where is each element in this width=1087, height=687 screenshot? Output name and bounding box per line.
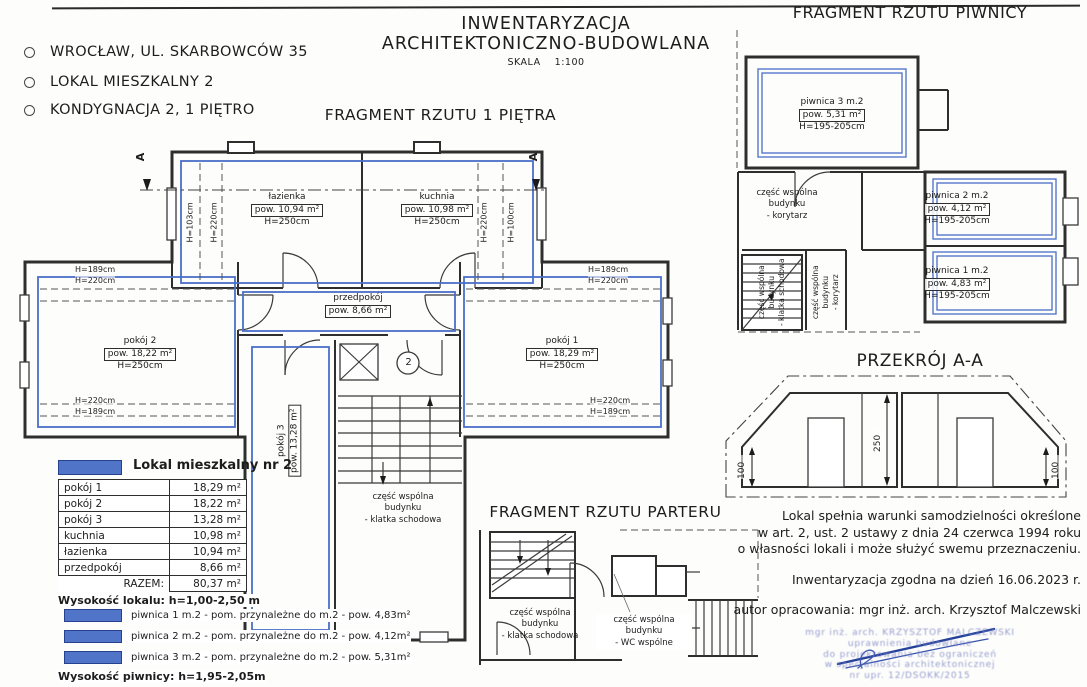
height-label: H=220cm <box>480 193 489 243</box>
section-marker-a-left: A <box>134 149 148 165</box>
table-row: łazienka10,94 m² <box>59 544 247 560</box>
unit-height-note: Wysokość lokalu: h=1,00-2,50 m <box>58 594 260 607</box>
room-label-pokoj1: pokój 1 pow. 18,29 m² H=250cm <box>512 336 612 373</box>
staircase <box>338 344 462 485</box>
notes-block: Lokal spełnia warunki samodzielności okr… <box>709 508 1081 633</box>
header-address-row: WROCŁAW, UL. SKARBOWCÓW 35 <box>24 44 308 60</box>
header-storey: KONDYGNACJA 2, 1 PIĘTRO <box>50 102 255 118</box>
room-area: pow. 18,29 m² <box>526 348 598 362</box>
bullet-circle-icon <box>24 77 35 88</box>
row-label: kuchnia <box>59 528 170 544</box>
row-label: przedpokój <box>59 560 170 576</box>
author-note: autor opracowania: mgr inż. arch. Krzysz… <box>709 602 1081 619</box>
common-area-label: część wspólna budynku - klatka schodowa <box>344 492 462 526</box>
row-label: łazienka <box>59 544 170 560</box>
room-name: piwnica 2 m.2 <box>897 191 1017 203</box>
room-height: H=195-205cm <box>897 216 1017 228</box>
row-value: 10,94 m² <box>170 544 247 560</box>
table-row: pokój 118,29 m² <box>59 480 247 496</box>
table-row: pokój 218,22 m² <box>59 496 247 512</box>
section-drawing <box>726 376 1066 497</box>
row-value: 18,29 m² <box>170 480 247 496</box>
height-label: H=220cm <box>75 276 115 285</box>
height-label: H=189cm <box>590 407 630 416</box>
legend-item-piwnica2: piwnica 2 m.2 - pom. przynależne do m.2 … <box>64 630 411 643</box>
height-label: H=220cm <box>590 396 630 405</box>
scale-note: SKALA 1:100 <box>356 57 736 68</box>
room-area: pow. 10,94 m² <box>251 204 323 218</box>
room-area: pow. 10,98 m² <box>401 204 473 218</box>
room-area: pow. 18,22 m² <box>104 348 176 362</box>
header-unit-row: LOKAL MIESZKALNY 2 <box>24 74 214 90</box>
legend-item-piwnica1: piwnica 1 m.2 - pom. przynależne do m.2 … <box>64 609 411 622</box>
basement-height-note: Wysokość piwnicy: h=1,95-2,05m <box>58 670 266 683</box>
height-label: H=189cm <box>75 407 115 416</box>
bullet-circle-icon <box>24 105 35 116</box>
room-name: piwnica 1 m.2 <box>897 266 1017 278</box>
room-height: H=250cm <box>90 361 190 373</box>
basement-color-swatch <box>64 609 122 622</box>
drawing-sheet: WROCŁAW, UL. SKARBOWCÓW 35 LOKAL MIESZKA… <box>0 0 1087 687</box>
height-label: H=100cm <box>507 193 516 243</box>
room-height: H=250cm <box>512 361 612 373</box>
room-label-piwnica1: piwnica 1 m.2 pow. 4,83 m² H=195-205cm <box>897 266 1017 303</box>
room-name: pokój 3 <box>276 381 288 501</box>
bullet-circle-icon <box>24 47 35 58</box>
table-row: kuchnia10,98 m² <box>59 528 247 544</box>
row-value: 13,28 m² <box>170 512 247 528</box>
basement-corridor-label-2: część wspólna budynku - korytarz <box>811 248 841 336</box>
document-title: INWENTARYZACJA ARCHITEKTONICZNO-BUDOWLAN… <box>356 14 736 68</box>
room-name: pokój 2 <box>90 336 190 348</box>
room-name: kuchnia <box>387 192 487 204</box>
height-label: H=189cm <box>588 265 628 274</box>
row-label: pokój 2 <box>59 496 170 512</box>
room-label-kuchnia: kuchnia pow. 10,98 m² H=250cm <box>387 192 487 229</box>
basement-color-swatch <box>64 630 122 643</box>
room-label-piwnica3: piwnica 3 m.2 pow. 5,31 m² H=195-205cm <box>772 97 892 134</box>
total-value: 80,37 m² <box>170 576 247 592</box>
room-name: łazienka <box>237 192 337 204</box>
unit-number: 2 <box>402 357 415 368</box>
legend-title: Lokal mieszkalny nr 2 <box>133 458 292 473</box>
first-floor-plan-title: FRAGMENT RZUTU 1 PIĘTRA <box>318 106 563 124</box>
section-marker-a-right: A <box>527 149 541 165</box>
basement-color-swatch <box>64 651 122 664</box>
ground-floor-plan-title: FRAGMENT RZUTU PARTERU <box>468 503 743 521</box>
area-table: pokój 118,29 m² pokój 218,22 m² pokój 31… <box>58 479 247 592</box>
inventory-date-note: Inwentaryzacja zgodna na dzień 16.06.202… <box>709 572 1081 589</box>
header-address: WROCŁAW, UL. SKARBOWCÓW 35 <box>50 44 308 60</box>
row-value: 8,66 m² <box>170 560 247 576</box>
header-storey-row: KONDYGNACJA 2, 1 PIĘTRO <box>24 102 255 118</box>
height-label: H=220cm <box>75 396 115 405</box>
table-total-row: RAZEM:80,37 m² <box>59 576 247 592</box>
legal-statement: Lokal spełnia warunki samodzielności okr… <box>709 508 1081 558</box>
row-value: 10,98 m² <box>170 528 247 544</box>
room-height: H=250cm <box>237 217 337 229</box>
section-dim-100-right: 100 <box>1051 455 1061 479</box>
table-row: pokój 313,28 m² <box>59 512 247 528</box>
basement-stair-label: część wspólna budynku - klatka schodowa <box>757 248 787 336</box>
title-line1: INWENTARYZACJA <box>356 14 736 34</box>
ground-wc-label: część wspólna budynku - WC wspólne <box>596 614 692 650</box>
room-name: pokój 1 <box>512 336 612 348</box>
room-label-piwnica2: piwnica 2 m.2 pow. 4,12 m² H=195-205cm <box>897 191 1017 228</box>
room-height: H=250cm <box>387 217 487 229</box>
room-label-pokoj2: pokój 2 pow. 18,22 m² H=250cm <box>90 336 190 373</box>
section-title: PRZEKRÓJ A-A <box>810 351 1030 371</box>
legend-item-piwnica3: piwnica 3 m.2 - pom. przynależne do m.2 … <box>64 651 411 664</box>
room-height: H=195-205cm <box>897 291 1017 303</box>
room-label-lazienka: łazienka pow. 10,94 m² H=250cm <box>237 192 337 229</box>
room-name: przedpokój <box>308 293 408 305</box>
height-label: H=220cm <box>210 193 219 243</box>
row-value: 18,22 m² <box>170 496 247 512</box>
room-height: H=195-205cm <box>772 122 892 134</box>
section-dim-250: 250 <box>873 428 883 452</box>
ground-stair-label: część wspólna budynku - klatka schodowa <box>486 608 594 642</box>
architect-stamp: mgr inż. arch. KRZYSZTOF MALCZEWSKI upra… <box>790 628 1030 682</box>
room-area: pow. 8,66 m² <box>325 305 392 319</box>
header-unit: LOKAL MIESZKALNY 2 <box>50 74 214 90</box>
title-line2: ARCHITEKTONICZNO-BUDOWLANA <box>356 34 736 54</box>
total-label: RAZEM: <box>59 576 170 592</box>
row-label: pokój 3 <box>59 512 170 528</box>
unit-color-swatch <box>58 460 122 475</box>
section-dim-100-left: 100 <box>737 455 747 479</box>
height-label: H=220cm <box>588 276 628 285</box>
room-area: pow. 5,31 m² <box>799 109 866 123</box>
basement-corridor-label: część wspólna budynku - korytarz <box>741 188 833 222</box>
room-label-przedpokoj: przedpokój pow. 8,66 m² <box>308 293 408 318</box>
room-label-pokoj3: pokój 3 pow. 13,28 m² <box>276 381 301 501</box>
row-label: pokój 1 <box>59 480 170 496</box>
room-area: pow. 4,12 m² <box>924 203 991 217</box>
height-label: H=103cm <box>186 193 195 243</box>
table-row: przedpokój8,66 m² <box>59 560 247 576</box>
basement-plan-title: FRAGMENT RZUTU PIWNICY <box>760 3 1060 22</box>
room-name: piwnica 3 m.2 <box>772 97 892 109</box>
room-area: pow. 4,83 m² <box>924 278 991 292</box>
height-label: H=189cm <box>75 265 115 274</box>
